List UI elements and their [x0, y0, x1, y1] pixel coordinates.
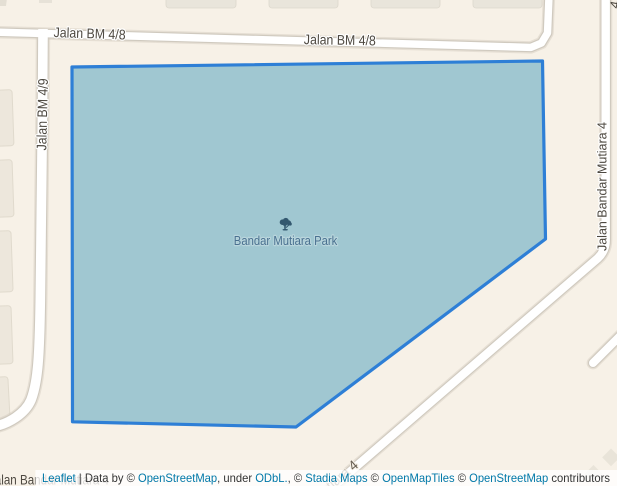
svg-text:Leaflet | Data by © OpenStreet: Leaflet | Data by © OpenStreetMap, under…	[42, 471, 610, 485]
svg-text:Jalan BM 4/8: Jalan BM 4/8	[53, 24, 126, 43]
svg-text:Jalan BM 4/9: Jalan BM 4/9	[33, 78, 51, 151]
svg-text:Jalan Bandar Mutiara 4: Jalan Bandar Mutiara 4	[595, 122, 610, 251]
svg-text:4: 4	[607, 0, 617, 10]
svg-text:Jalan BM 4/8: Jalan BM 4/8	[304, 31, 376, 48]
svg-text:Bandar Mutiara Park: Bandar Mutiara Park	[234, 233, 338, 248]
